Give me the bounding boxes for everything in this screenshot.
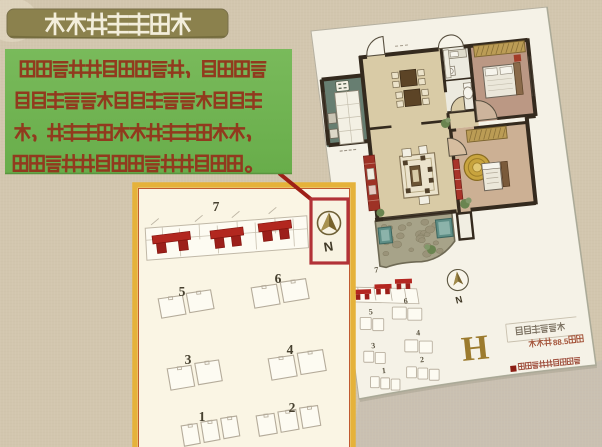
- svg-text:5: 5: [179, 284, 186, 299]
- svg-text:3: 3: [185, 352, 192, 367]
- svg-text:7: 7: [213, 199, 220, 214]
- svg-text:1: 1: [199, 409, 206, 424]
- svg-text:H: H: [459, 327, 490, 369]
- svg-text:4: 4: [287, 342, 294, 357]
- svg-text:88.5: 88.5: [552, 337, 569, 348]
- svg-text:6: 6: [275, 271, 282, 286]
- svg-text:2: 2: [289, 400, 296, 415]
